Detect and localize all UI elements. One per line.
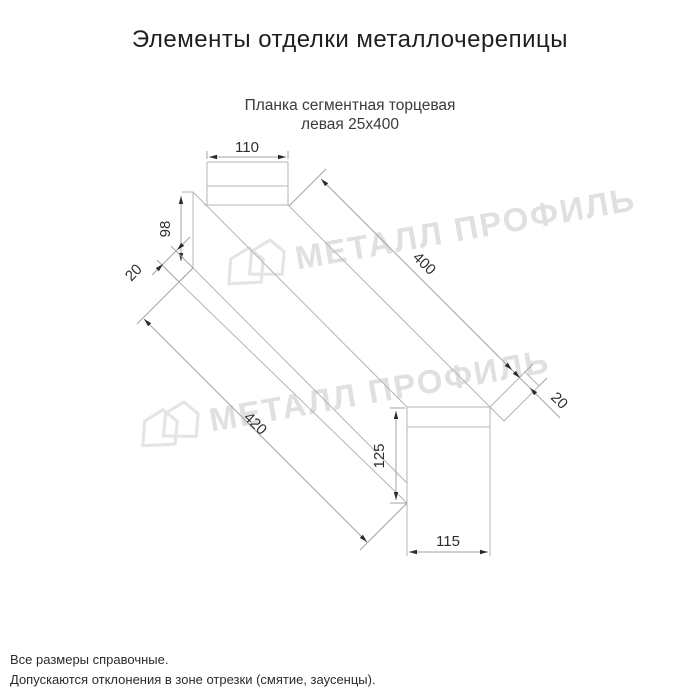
footer-note-2: Допускаются отклонения в зоне отрезки (с…	[10, 670, 376, 690]
dimension-110-group: 110	[207, 139, 288, 159]
dim-label-far-fold: 20	[122, 261, 146, 285]
dimension-98-group: 98	[157, 196, 183, 261]
metal-profil-logo-icon	[223, 238, 289, 288]
drawing-canvas: МЕТАЛЛ ПРОФИЛЬ МЕТАЛЛ ПРОФИЛЬ	[0, 0, 700, 700]
dim-label-near-height: 125	[371, 443, 388, 468]
dimension-115-group: 115	[409, 533, 488, 554]
technical-drawing-page: Элементы отделки металлочерепицы Планка …	[0, 0, 700, 700]
dim-label-far-height: 98	[157, 221, 174, 238]
dimension-20-far-group: 20	[122, 237, 193, 285]
dim-label-near-width: 115	[436, 533, 460, 550]
footer-notes: Все размеры справочные. Допускаются откл…	[10, 650, 376, 690]
watermark-text: МЕТАЛЛ ПРОФИЛЬ	[292, 180, 638, 276]
metal-profil-logo-icon	[137, 400, 203, 450]
dim-label-top-width: 110	[235, 139, 259, 156]
footer-note-1: Все размеры справочные.	[10, 650, 376, 670]
dimension-125-group: 125	[371, 408, 407, 503]
